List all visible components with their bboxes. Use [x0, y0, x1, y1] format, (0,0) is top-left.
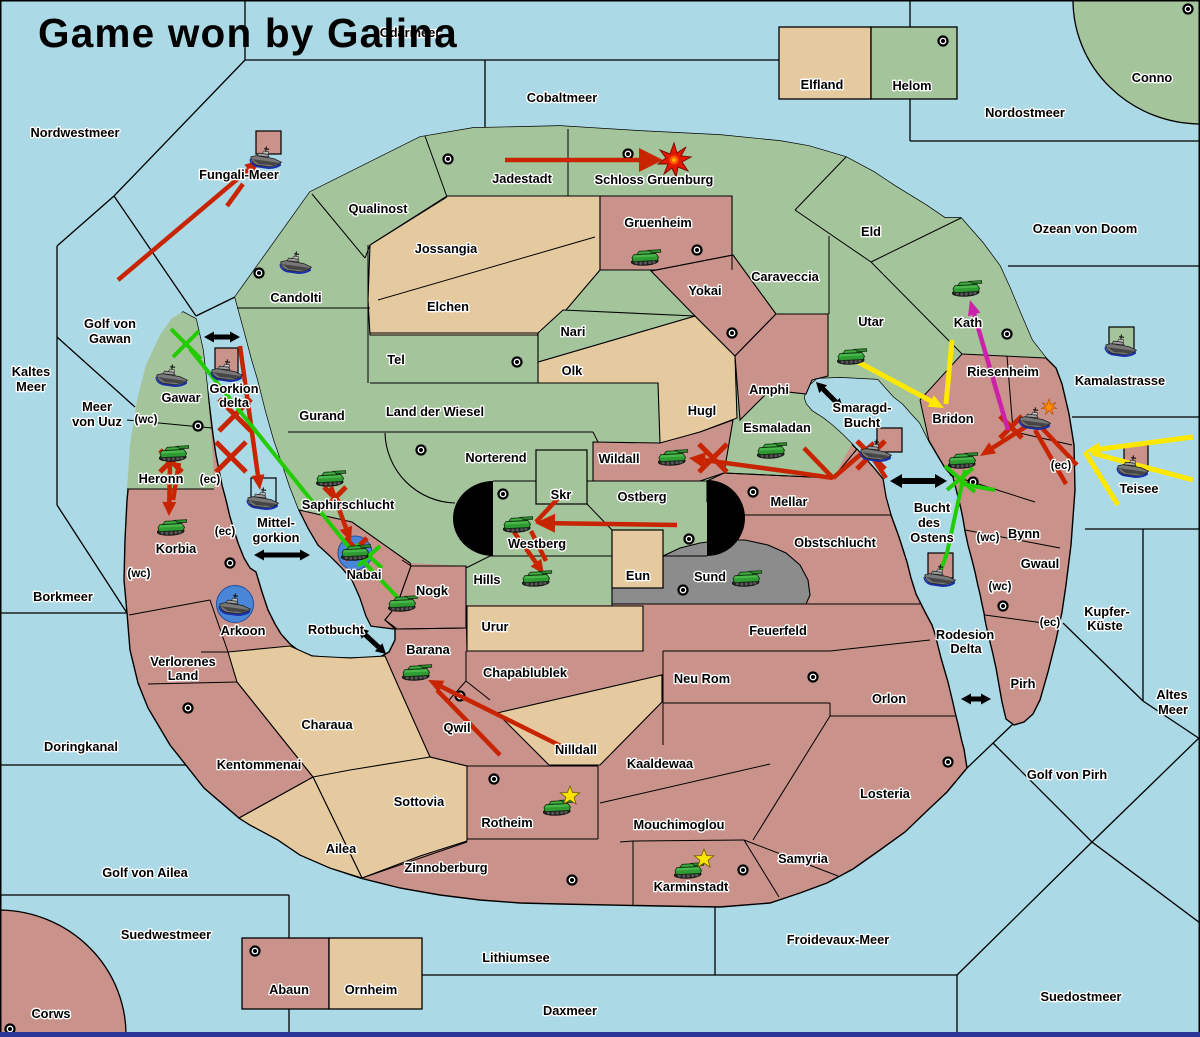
svg-text:Saphirschlucht: Saphirschlucht	[302, 497, 395, 512]
svg-text:Sund: Sund	[694, 569, 726, 584]
svg-text:Nogk: Nogk	[416, 583, 449, 598]
svg-text:Land: Land	[168, 668, 199, 683]
svg-text:Meer: Meer	[16, 379, 46, 394]
svg-text:(wc): (wc)	[989, 581, 1012, 593]
svg-text:Ornheim: Ornheim	[345, 982, 398, 997]
svg-text:Wildall: Wildall	[598, 451, 639, 466]
svg-text:(ec): (ec)	[1051, 460, 1072, 472]
svg-text:Schloss Gruenburg: Schloss Gruenburg	[595, 172, 714, 187]
svg-text:Heronn: Heronn	[139, 471, 184, 486]
svg-text:Bucht: Bucht	[914, 500, 951, 515]
svg-text:Qualinost: Qualinost	[348, 201, 408, 216]
svg-text:Elfland: Elfland	[801, 77, 844, 92]
svg-text:Ailea: Ailea	[326, 841, 357, 856]
svg-text:Karminstadt: Karminstadt	[654, 879, 729, 894]
svg-text:Hills: Hills	[473, 572, 500, 587]
svg-text:Mouchimoglou: Mouchimoglou	[634, 817, 725, 832]
svg-text:Helom: Helom	[892, 78, 931, 93]
svg-text:Urur: Urur	[481, 619, 508, 634]
svg-text:des: des	[918, 515, 940, 530]
svg-text:Game won by Galina: Game won by Galina	[38, 10, 458, 56]
svg-text:Kaaldewaa: Kaaldewaa	[627, 756, 694, 771]
svg-text:Cobaltmeer: Cobaltmeer	[527, 90, 597, 105]
svg-text:Samyria: Samyria	[778, 851, 829, 866]
svg-text:Chapablublek: Chapablublek	[483, 665, 568, 680]
svg-text:Arkoon: Arkoon	[221, 623, 266, 638]
svg-text:Orlon: Orlon	[872, 691, 906, 706]
svg-text:Jossangia: Jossangia	[415, 241, 478, 256]
svg-text:Tel: Tel	[387, 352, 405, 367]
svg-text:Kentommenai: Kentommenai	[217, 757, 302, 772]
svg-text:Froidevaux-Meer: Froidevaux-Meer	[787, 932, 889, 947]
svg-text:Esmaladan: Esmaladan	[743, 420, 811, 435]
svg-text:Suedwestmeer: Suedwestmeer	[121, 927, 211, 942]
svg-text:Amphi: Amphi	[749, 382, 789, 397]
svg-text:Conno: Conno	[1132, 70, 1173, 85]
svg-text:Ostberg: Ostberg	[617, 489, 666, 504]
svg-text:Yokai: Yokai	[688, 283, 721, 298]
svg-text:Feuerfeld: Feuerfeld	[749, 623, 807, 638]
svg-text:Elchen: Elchen	[427, 299, 469, 314]
svg-text:Caraveccia: Caraveccia	[751, 269, 819, 284]
svg-text:Ostens: Ostens	[910, 530, 953, 545]
svg-text:Golf von Ailea: Golf von Ailea	[102, 865, 188, 880]
svg-text:Küste: Küste	[1087, 618, 1123, 633]
svg-text:Kath: Kath	[954, 315, 983, 330]
svg-text:Sottovia: Sottovia	[394, 794, 445, 809]
svg-text:Gawan: Gawan	[89, 331, 131, 346]
svg-text:Smaragd-: Smaragd-	[832, 400, 891, 415]
svg-text:(ec): (ec)	[1040, 617, 1061, 629]
svg-text:Nabai: Nabai	[347, 567, 382, 582]
svg-text:delta: delta	[219, 395, 250, 410]
svg-text:Doringkanal: Doringkanal	[44, 739, 118, 754]
svg-text:Riesenheim: Riesenheim	[967, 364, 1039, 379]
svg-text:Rodesion: Rodesion	[936, 627, 994, 642]
svg-text:Meer: Meer	[1158, 702, 1188, 717]
svg-text:Corws: Corws	[31, 1006, 70, 1021]
svg-text:Suedostmeer: Suedostmeer	[1040, 989, 1121, 1004]
svg-text:(ec): (ec)	[200, 474, 221, 486]
svg-text:Pirh: Pirh	[1011, 676, 1036, 691]
svg-text:Skr: Skr	[551, 487, 572, 502]
svg-text:Bynn: Bynn	[1008, 526, 1040, 541]
svg-text:Nordwestmeer: Nordwestmeer	[31, 125, 120, 140]
svg-text:gorkion: gorkion	[253, 530, 300, 545]
svg-text:Westberg: Westberg	[508, 536, 566, 551]
svg-text:Candolti: Candolti	[270, 290, 321, 305]
svg-text:Rotbucht: Rotbucht	[308, 622, 365, 637]
svg-text:Kaltes: Kaltes	[12, 364, 50, 379]
svg-text:Ozean von Doom: Ozean von Doom	[1033, 221, 1138, 236]
svg-text:Bridon: Bridon	[932, 411, 973, 426]
svg-text:(wc): (wc)	[128, 568, 151, 580]
svg-text:Kupfer-: Kupfer-	[1084, 604, 1130, 619]
svg-text:Meer: Meer	[82, 399, 112, 414]
svg-text:Nari: Nari	[561, 324, 586, 339]
svg-text:Hugl: Hugl	[688, 403, 716, 418]
svg-text:Golf von Pirh: Golf von Pirh	[1027, 767, 1108, 782]
svg-text:Nilldall: Nilldall	[555, 742, 597, 757]
svg-text:Bucht: Bucht	[844, 415, 881, 430]
svg-text:Fungali-Meer: Fungali-Meer	[199, 167, 279, 182]
svg-text:Kamalastrasse: Kamalastrasse	[1075, 373, 1165, 388]
svg-text:Olk: Olk	[562, 363, 584, 378]
svg-text:(wc): (wc)	[977, 532, 1000, 544]
svg-text:Neu Rom: Neu Rom	[674, 671, 730, 686]
svg-text:Losteria: Losteria	[860, 786, 911, 801]
svg-text:Abaun: Abaun	[269, 982, 309, 997]
svg-text:Golf von: Golf von	[84, 316, 136, 331]
svg-text:Mittel-: Mittel-	[257, 515, 295, 530]
svg-text:Norterend: Norterend	[465, 450, 526, 465]
svg-text:Zinnoberburg: Zinnoberburg	[404, 860, 487, 875]
svg-text:Charaua: Charaua	[301, 717, 353, 732]
svg-text:Qwil: Qwil	[443, 720, 470, 735]
svg-text:Rotheim: Rotheim	[481, 815, 532, 830]
svg-text:von Uuz: von Uuz	[72, 414, 122, 429]
svg-text:Nordostmeer: Nordostmeer	[985, 105, 1065, 120]
svg-text:Daxmeer: Daxmeer	[543, 1003, 597, 1018]
svg-text:Delta: Delta	[950, 641, 982, 656]
svg-text:Land der Wiesel: Land der Wiesel	[386, 404, 484, 419]
svg-text:Borkmeer: Borkmeer	[33, 589, 93, 604]
svg-text:Eun: Eun	[626, 568, 650, 583]
svg-text:Obstschlucht: Obstschlucht	[794, 535, 877, 550]
svg-text:Lithiumsee: Lithiumsee	[482, 950, 550, 965]
svg-text:Gorkion: Gorkion	[209, 381, 258, 396]
svg-text:Teisee: Teisee	[1120, 481, 1159, 496]
svg-text:Gurand: Gurand	[299, 408, 345, 423]
svg-text:Korbia: Korbia	[156, 541, 197, 556]
svg-text:Utar: Utar	[858, 314, 884, 329]
svg-text:Gruenheim: Gruenheim	[624, 215, 692, 230]
svg-text:(ec): (ec)	[215, 526, 236, 538]
svg-text:Gawar: Gawar	[161, 390, 200, 405]
svg-text:Altes: Altes	[1156, 687, 1187, 702]
svg-text:Gwaul: Gwaul	[1021, 556, 1059, 571]
svg-text:Barana: Barana	[406, 642, 450, 657]
svg-text:Jadestadt: Jadestadt	[492, 171, 552, 186]
svg-text:Mellar: Mellar	[771, 494, 808, 509]
svg-text:(wc): (wc)	[135, 414, 158, 426]
svg-text:Eld: Eld	[861, 224, 881, 239]
svg-text:Verlorenes: Verlorenes	[150, 654, 215, 669]
